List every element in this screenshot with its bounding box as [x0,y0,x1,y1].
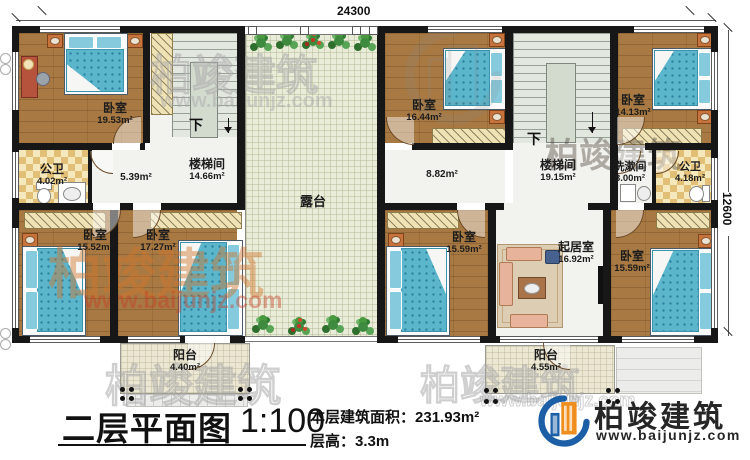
room-label-balcony-right: 阳台 4.55m² [531,349,561,374]
room-label-washroom: 洗漱间 3.00m² [614,161,647,185]
room-name: 阳台 [531,349,561,363]
pillow [68,36,94,49]
room-area: 19.15m² [540,173,576,184]
room-area: 3.00m² [614,174,647,185]
column-dot [120,396,125,401]
window [634,26,704,33]
room-name: 阳台 [170,349,200,363]
bed-blanket [37,248,83,332]
wall-segment [505,26,513,150]
room-name: 公卫 [37,163,67,177]
room-area: 4.02m² [37,177,67,188]
bed-blanket [445,50,490,106]
sink-icon [63,187,81,201]
window [622,336,694,343]
floor-area-value: 231.93m² [415,409,479,426]
drawing-title: 二层平面图 [62,402,232,450]
plant-icon [328,320,338,330]
room-label-bedroom-bl2: 卧室 17.27m² [140,229,175,254]
room-label-bedroom-r2: 卧室 14.13m² [615,94,650,119]
plant-icon [360,38,370,48]
wardrobe [656,212,710,229]
wall-segment [140,143,145,150]
floor-area-line: 本层建筑面积：231.93m² [310,406,479,427]
railing-post [248,26,257,35]
stair-down-arrow-right [592,112,593,133]
pillow [25,291,38,330]
floor-area-label: 本层建筑面积： [310,409,415,426]
window [500,336,598,343]
wall-segment [644,203,718,210]
window [12,52,19,110]
window [711,158,718,200]
terrace-railing-bottom [245,336,377,342]
pillow [490,79,503,104]
grid-bubble [0,339,11,350]
wall-segment [19,143,112,150]
pillow [389,291,402,330]
window [398,336,480,343]
lamp-icon [23,59,34,70]
grid-bubble [0,328,11,339]
room-name: 楼梯间 [189,158,225,172]
chair-icon [36,72,50,86]
railing-post [352,26,361,35]
wall-segment [12,203,93,210]
nightstand [127,34,143,48]
wall-segment [161,203,245,210]
room-label-balcony-left: 阳台 4.40m² [170,349,200,374]
wardrobe [150,212,242,229]
room-name: 卧室 [406,99,441,113]
column-dot [238,387,243,392]
room-name: 楼梯间 [540,159,576,173]
nightstand [388,233,404,247]
window [12,152,19,198]
column-dot [129,396,134,401]
room-name: 卧室 [77,229,112,243]
nightstand [489,33,505,47]
room-label-bedroom-br: 卧室 15.59m² [614,250,649,275]
room-area: 16.44m² [406,113,441,124]
wall-segment [412,143,505,150]
column-dot [484,388,489,393]
wall-segment [488,203,496,343]
sofa-left [499,262,513,306]
room-area: 4.18m² [675,174,705,185]
window [12,228,19,328]
plant-icon [294,322,304,332]
column-dot [120,387,125,392]
room-name: 起居室 [558,241,594,255]
balcony-door-opening [185,336,230,343]
company-logo-icon [537,392,591,450]
room-area: 16.92m² [558,255,594,266]
room-label-terrace: 露台 [300,195,326,210]
column-dot [493,399,498,404]
room-label-bedroom-r1: 卧室 16.44m² [406,99,441,124]
wardrobe [387,212,459,229]
plant-icon [334,36,344,46]
bed-sheet-fold [67,50,123,91]
bed-sheet-fold [446,51,489,105]
washer-icon [620,184,636,202]
stair-down-arrow-left [228,118,229,133]
nightstand [489,110,505,124]
dimension-label-top: 24300 [334,4,373,18]
bed-sheet-fold [38,249,82,331]
room-label-stair-left: 楼梯间 14.66m² [189,158,225,183]
column-dot [247,396,252,401]
room-name: 公卫 [675,161,705,174]
toilet-icon-r [689,186,704,202]
dimension-line-top [16,20,716,21]
dimension-line-right [728,30,729,336]
company-website: www.baijunjz.com [596,427,741,443]
plant-icon [358,322,368,332]
wall-segment [588,203,616,210]
floor-height-value: 3.3m [355,433,389,450]
stair-down-label-left: 下 [189,115,203,135]
room-label-bath-r: 公卫 4.18m² [675,161,705,185]
room-name: 露台 [300,195,326,210]
room-name: 卧室 [614,250,649,264]
stair-down-label-right: 下 [527,129,541,149]
room-area: 19.53m² [97,116,132,127]
pillow [490,52,503,77]
grid-bubble [0,64,11,75]
bed-sheet-fold [181,243,226,331]
room-label-living: 起居室 16.92m² [558,241,594,266]
railing-post [369,26,378,35]
room-area: 5.39m² [120,172,152,184]
dimension-tick [37,6,46,15]
window [128,336,180,343]
nightstand [22,233,38,247]
pillow [698,52,711,77]
pillow [227,288,240,330]
pillow [25,250,38,289]
bed-blanket [654,50,698,106]
entry-steps-right [616,347,702,394]
sofa-bottom [510,314,548,328]
wall-segment [377,26,385,343]
room-label-bedroom-bm: 卧室 15.59m² [446,231,481,256]
window [711,52,718,110]
sofa-top [506,247,542,261]
bed-blanket [66,49,124,92]
toilet-icon [37,188,51,204]
plant-icon [256,38,266,48]
room-label-hall-right: 8.82m² [426,169,458,181]
window [711,228,718,328]
room-floor-terrace [245,33,379,338]
room-label-bedroom-bl: 卧室 15.52m² [77,229,112,254]
room-name: 洗漱间 [614,161,647,174]
sink-icon-washroom [637,186,651,201]
pillow [698,79,711,104]
column-dot [129,387,134,392]
room-area: 4.40m² [170,363,200,374]
dimension-label-right: 12600 [720,192,734,236]
room-label-stair-right: 楼梯间 19.15m² [540,159,576,184]
bed-blanket [180,242,227,332]
wall-segment [603,203,611,343]
column-dot [238,396,243,401]
plant-icon [258,320,268,330]
floor-height-line: 层高：3.3m [310,430,389,451]
window [40,26,120,33]
room-name: 卧室 [446,231,481,245]
pillow [227,244,240,286]
pillow [96,36,122,49]
railing-post [300,26,309,35]
room-area: 14.66m² [189,172,225,183]
plant-icon [308,36,318,46]
bed-sheet-fold [655,51,697,105]
wall-segment [143,26,150,143]
room-area: 14.13m² [615,108,650,119]
bed-sheet-fold [653,251,698,331]
wall-segment [377,203,457,210]
room-name: 卧室 [97,102,132,116]
room-name: 卧室 [615,94,650,108]
room-area: 4.55m² [531,363,561,374]
room-area: 8.82m² [426,169,458,181]
column-dot [247,387,252,392]
floor-plan-canvas: 卧室 19.53m² 公卫 4.02m² 5.39m² 楼梯间 14.66m² … [0,0,750,460]
bed-blanket [652,250,699,332]
stair-landing-right [546,63,576,143]
bed-sheet-fold [402,249,446,331]
plant-icon [282,36,292,46]
coffee-table [518,277,546,299]
wall-segment [237,26,245,210]
window [30,336,100,343]
wardrobe [151,33,173,115]
title-underline [58,444,306,446]
room-label-bedroom-tl: 卧室 19.53m² [97,102,132,127]
room-area: 15.52m² [77,243,112,254]
column-dot [484,399,489,404]
bed-blanket [401,248,447,332]
room-label-bath-tl: 公卫 4.02m² [37,163,67,188]
room-area: 17.27m² [140,243,175,254]
wall-segment [120,203,133,210]
dimension-tick [685,6,694,15]
column-dot [493,388,498,393]
room-area: 15.59m² [446,245,481,256]
room-name: 卧室 [140,229,175,243]
grid-bubble [0,53,11,64]
floor-height-label: 层高： [310,433,355,450]
room-label-hall-left: 5.39m² [120,172,152,184]
window [428,26,502,33]
room-area: 15.59m² [614,264,649,275]
nightstand [47,34,63,48]
pillow [389,250,402,289]
